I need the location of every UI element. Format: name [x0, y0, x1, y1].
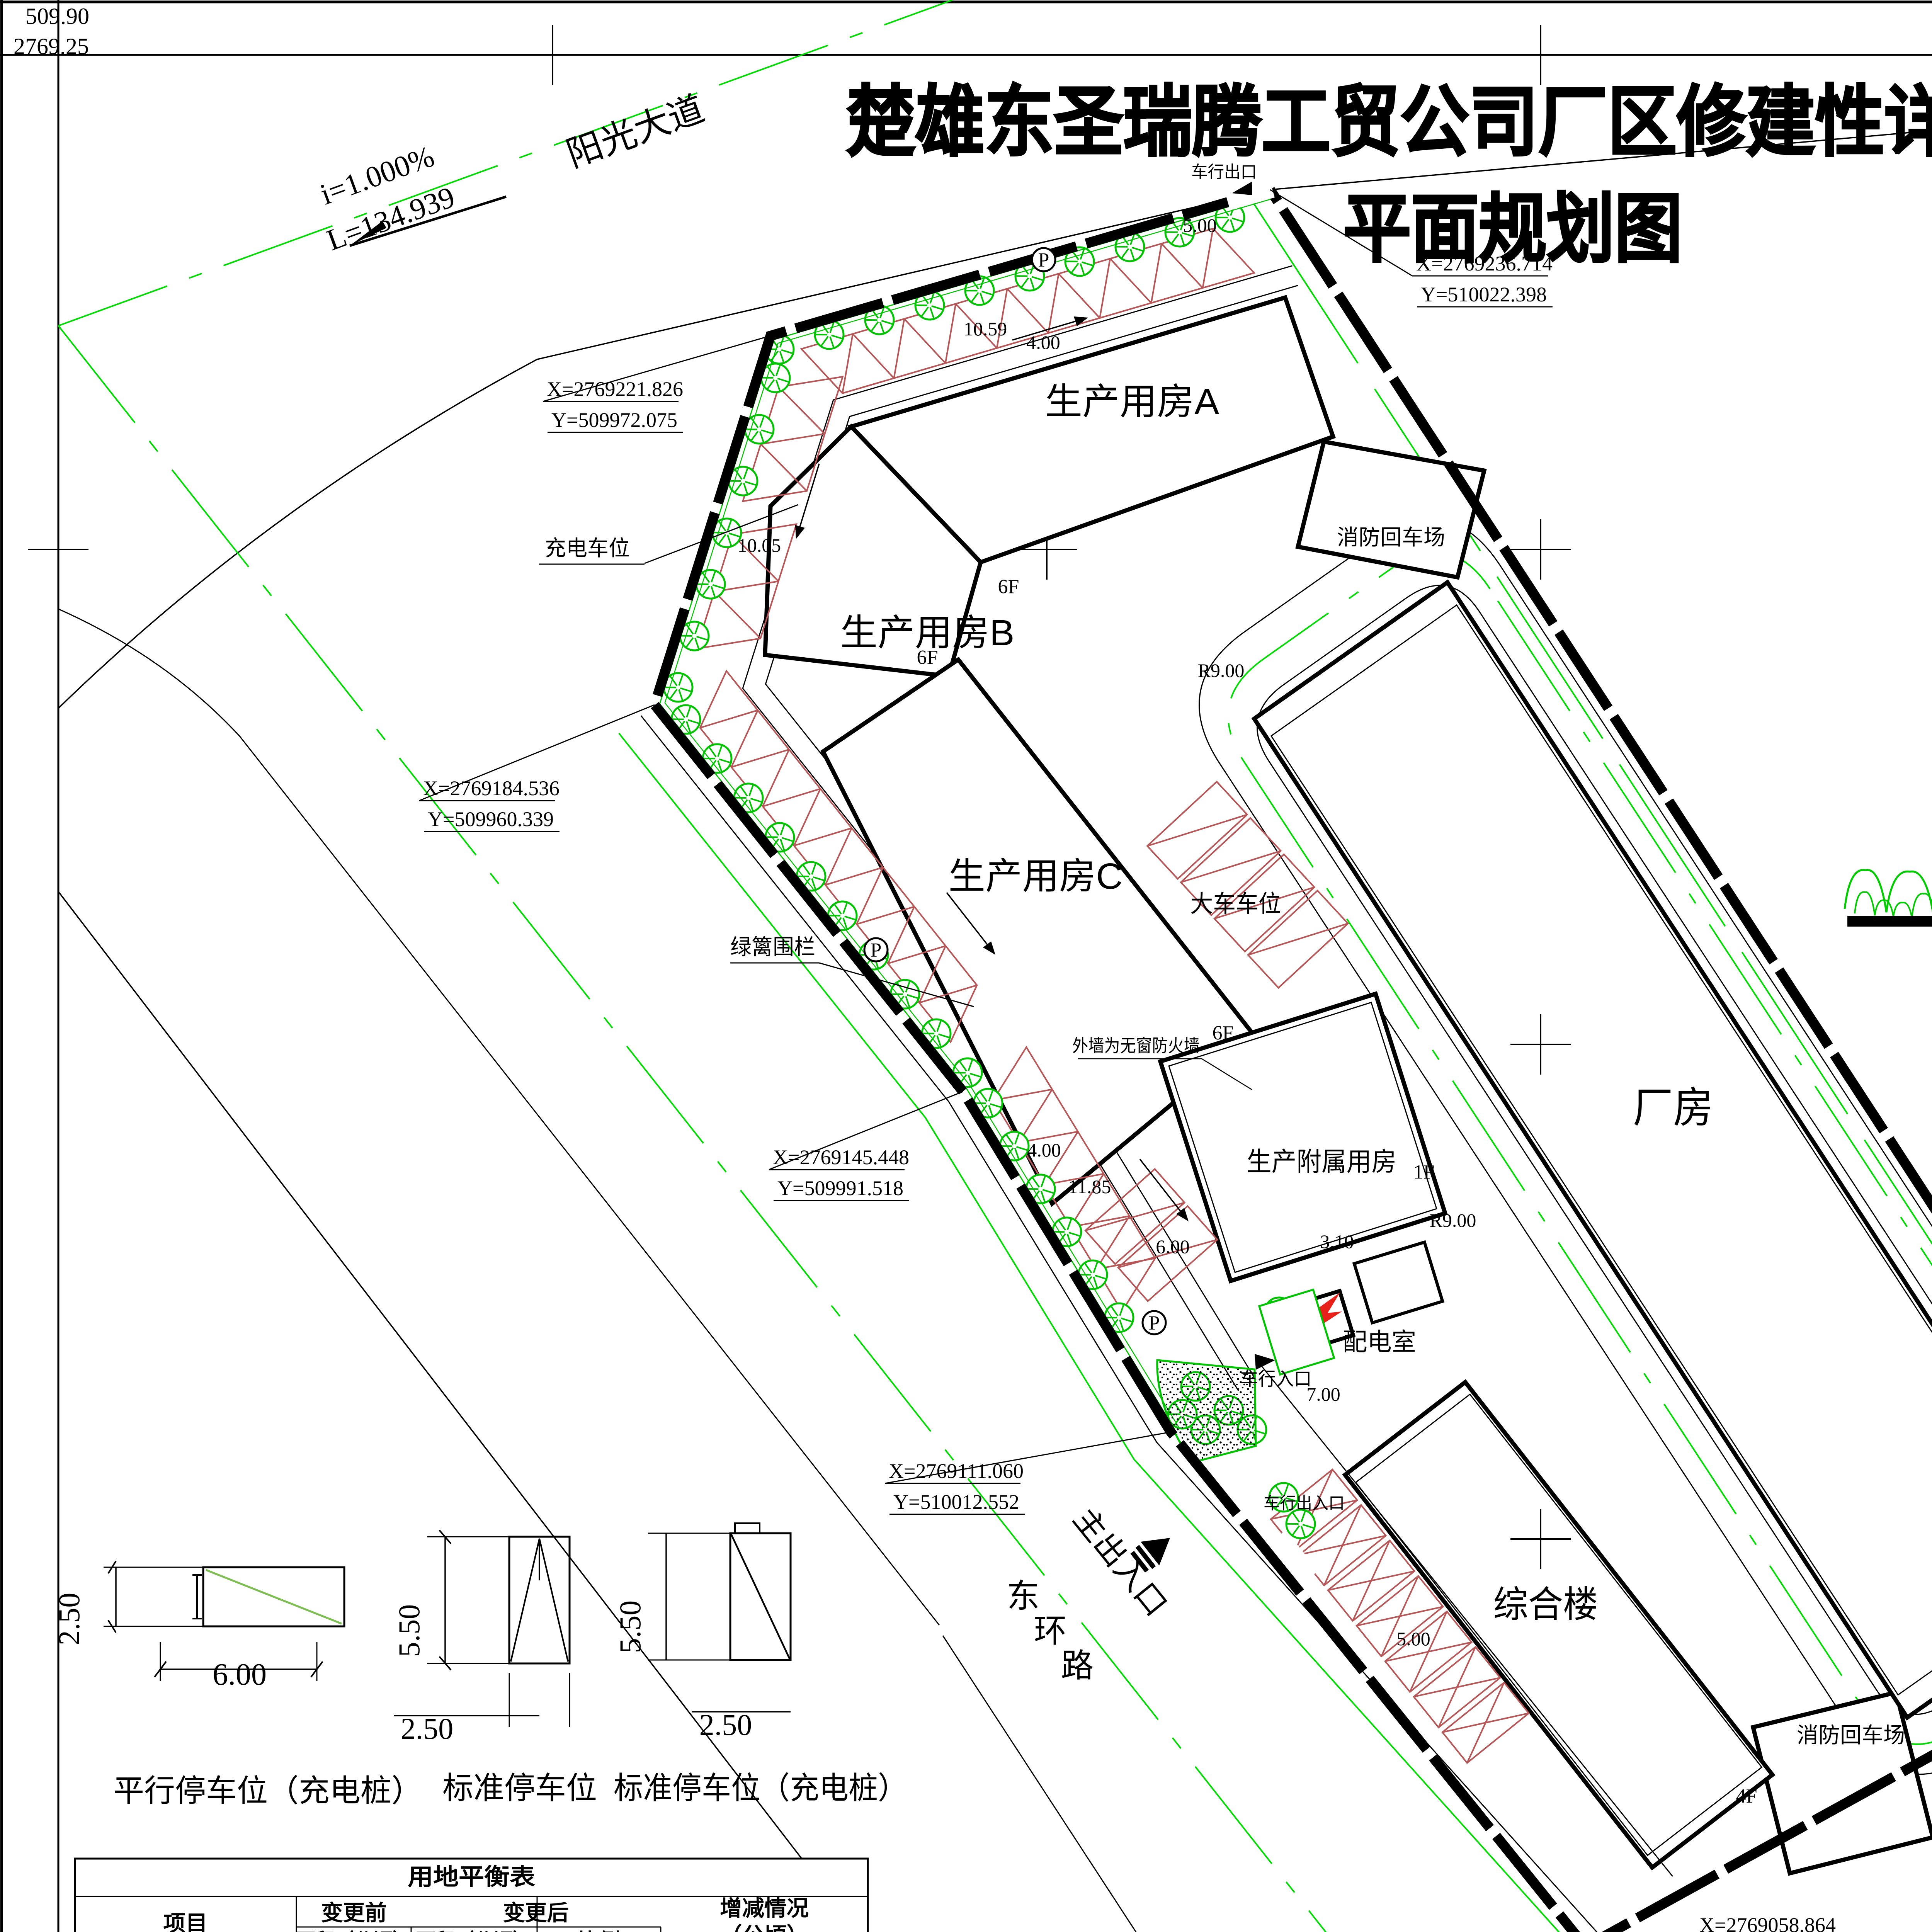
svg-text:用地平衡表: 用地平衡表 — [408, 1864, 535, 1890]
svg-text:P: P — [1149, 1312, 1160, 1334]
svg-text:Y=509991.518: Y=509991.518 — [777, 1177, 903, 1200]
svg-text:Y=510022.398: Y=510022.398 — [1421, 283, 1547, 306]
svg-text:2.50: 2.50 — [401, 1712, 454, 1745]
svg-text:车行出入口: 车行出入口 — [1264, 1494, 1345, 1513]
svg-text:综合楼: 综合楼 — [1493, 1584, 1598, 1625]
svg-text:增减情况: 增减情况 — [720, 1896, 809, 1920]
svg-text:5.00: 5.00 — [1183, 214, 1217, 236]
svg-text:标准停车位: 标准停车位 — [442, 1771, 597, 1805]
svg-text:1F: 1F — [1413, 1161, 1435, 1183]
svg-text:X=2769058.864: X=2769058.864 — [1699, 1913, 1836, 1932]
svg-text:3.10: 3.10 — [1320, 1231, 1354, 1252]
svg-text:6F: 6F — [998, 576, 1019, 598]
svg-text:充电车位: 充电车位 — [545, 536, 630, 560]
svg-text:10.05: 10.05 — [738, 534, 781, 556]
svg-text:大车车位: 大车车位 — [1190, 891, 1281, 917]
svg-text:7.00: 7.00 — [1306, 1383, 1340, 1405]
svg-text:面积（公顷）: 面积（公顷） — [296, 1930, 412, 1932]
svg-text:项目: 项目 — [163, 1911, 208, 1932]
svg-text:P: P — [871, 939, 882, 961]
svg-text:6F: 6F — [917, 646, 938, 668]
svg-text:6.00: 6.00 — [213, 1658, 267, 1692]
svg-text:东: 东 — [1007, 1578, 1039, 1615]
svg-text:Y=509972.075: Y=509972.075 — [551, 408, 677, 432]
svg-text:配电室: 配电室 — [1343, 1328, 1416, 1356]
svg-text:平行停车位（充电桩）: 平行停车位（充电桩） — [113, 1774, 422, 1808]
svg-text:消防回车场: 消防回车场 — [1337, 525, 1445, 549]
svg-text:Y=510012.552: Y=510012.552 — [893, 1490, 1019, 1514]
svg-text:2769.25: 2769.25 — [14, 34, 89, 59]
svg-text:P: P — [1038, 249, 1049, 271]
svg-text:Y=509960.339: Y=509960.339 — [428, 808, 554, 831]
svg-text:车行出口: 车行出口 — [1191, 163, 1257, 182]
svg-text:R9.00: R9.00 — [1198, 660, 1245, 681]
svg-text:10.59: 10.59 — [964, 318, 1007, 340]
svg-text:X=2769145.448: X=2769145.448 — [773, 1146, 909, 1169]
svg-text:车行入口: 车行入口 — [1240, 1369, 1312, 1389]
svg-text:路: 路 — [1061, 1648, 1094, 1684]
svg-text:2.50: 2.50 — [52, 1593, 86, 1646]
svg-text:生产用房C: 生产用房C — [949, 856, 1123, 897]
svg-text:4F: 4F — [1736, 1785, 1757, 1807]
svg-text:比例: 比例 — [578, 1930, 620, 1932]
svg-text:2.50: 2.50 — [699, 1708, 752, 1742]
svg-text:5.00: 5.00 — [1396, 1628, 1430, 1650]
svg-text:4.00: 4.00 — [1027, 1139, 1061, 1161]
svg-text:外墙为无窗防火墙: 外墙为无窗防火墙 — [1072, 1036, 1200, 1056]
svg-text:绿篱围栏: 绿篱围栏 — [730, 935, 815, 959]
svg-text:X=2769184.536: X=2769184.536 — [423, 777, 560, 800]
svg-text:509.90: 509.90 — [26, 3, 89, 29]
svg-text:5.50: 5.50 — [392, 1604, 426, 1657]
svg-text:6.00: 6.00 — [1156, 1236, 1190, 1257]
svg-text:5.50: 5.50 — [613, 1600, 647, 1653]
svg-text:生产用房A: 生产用房A — [1045, 381, 1220, 422]
svg-text:（公顷）: （公顷） — [720, 1923, 809, 1932]
svg-text:面积（公顷）: 面积（公顷） — [416, 1930, 532, 1932]
svg-text:厂房: 厂房 — [1633, 1084, 1714, 1132]
svg-text:消防回车场: 消防回车场 — [1797, 1723, 1905, 1747]
svg-text:X=2769236.714: X=2769236.714 — [1416, 252, 1553, 275]
svg-text:楚雄东圣瑞腾工贸公司厂区修建性详细规划（变更）: 楚雄东圣瑞腾工贸公司厂区修建性详细规划（变更） — [846, 79, 1932, 165]
svg-text:变更前: 变更前 — [321, 1901, 387, 1925]
svg-text:6F: 6F — [1213, 1022, 1234, 1044]
svg-text:生产附属用房: 生产附属用房 — [1247, 1147, 1396, 1177]
svg-text:R9.00: R9.00 — [1430, 1209, 1476, 1231]
svg-text:标准停车位（充电桩）: 标准停车位（充电桩） — [614, 1771, 907, 1805]
svg-text:11.85: 11.85 — [1068, 1176, 1111, 1197]
svg-text:环: 环 — [1034, 1613, 1066, 1650]
svg-text:变更后: 变更后 — [503, 1901, 569, 1925]
